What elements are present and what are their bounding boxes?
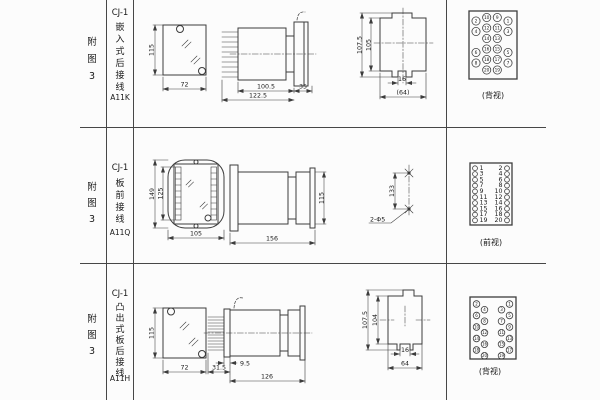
dim-total: 122.5 — [249, 93, 267, 100]
flange-stadium-outline — [168, 160, 224, 228]
view-label: (背视) — [460, 366, 520, 377]
terminal-number: 16 — [482, 342, 488, 347]
terminal-number: 13 — [495, 36, 501, 42]
view-label: (背视) — [464, 90, 522, 101]
terminal-strip-right-cells — [211, 173, 217, 215]
figure-ref-label: 附 图 3 — [82, 34, 102, 85]
row1-side-view-drawing: 100.5 35 122.5 — [216, 6, 321, 106]
code-label: A11Q — [105, 228, 135, 237]
screw-slot-icon — [200, 202, 208, 209]
cutout-outline — [163, 25, 206, 75]
terminal-number: 17 — [507, 347, 513, 352]
dim-total: 156 — [266, 236, 278, 243]
terminal-number: 10 — [484, 15, 490, 21]
terminal-grid — [470, 163, 512, 225]
row2-terminal-view: 1 3 5 7 9 11 13 15 17 19 2 4 6 8 10 12 1… — [467, 161, 515, 229]
row3-rear-view-drawing: 107.5 104 16 64 — [360, 282, 450, 382]
screw-slot-icon — [180, 322, 189, 330]
terminal-number: 2 — [475, 19, 478, 25]
terminal-number: 16 — [484, 47, 490, 53]
terminal-number: 12 — [484, 26, 490, 32]
terminal-number: 19 — [480, 217, 488, 224]
terminal-number: 18 — [474, 347, 480, 352]
terminal-number: 4 — [475, 29, 478, 35]
terminal-number: 15 — [499, 342, 505, 347]
model-label: CJ-1 — [107, 8, 133, 18]
terminal-strip-left-cells — [176, 173, 182, 215]
terminal-circle — [505, 189, 510, 194]
model-label: CJ-1 — [107, 289, 133, 299]
terminal-circle — [505, 218, 510, 223]
dim-outer-h: 149 — [149, 188, 156, 200]
terminal-circle — [505, 177, 510, 182]
terminal-circle — [473, 166, 478, 171]
mounting-hole-icon — [168, 308, 175, 315]
screw-hole-icon — [194, 160, 198, 164]
terminal-number: 7 — [507, 61, 510, 67]
terminal-number: 6 — [475, 313, 478, 318]
connector-lines — [288, 177, 296, 219]
terminal-number: 8 — [483, 319, 486, 324]
dim-outer-h: 107.5 — [357, 36, 364, 54]
rear-section — [296, 172, 310, 224]
dim-height: 115 — [319, 192, 326, 204]
dim-comb: 31.5 — [212, 365, 226, 372]
terminal-number: 19 — [499, 353, 505, 358]
view-label: (前视) — [462, 237, 520, 248]
dim-width: 72 — [180, 365, 188, 372]
terminal-circle — [505, 172, 510, 177]
terminal-number: 9 — [508, 324, 511, 329]
terminal-number: 10 — [474, 324, 480, 329]
screw-slot-icon — [189, 338, 198, 346]
terminal-circle — [505, 166, 510, 171]
screw-slot-icon — [182, 40, 191, 48]
dim-height: 115 — [149, 327, 156, 339]
dim-total-w: 64 — [401, 361, 409, 368]
dim-width: 105 — [190, 231, 202, 238]
grid-vline-2 — [133, 0, 134, 400]
relay-body — [238, 172, 288, 224]
terminal-circle — [473, 172, 478, 177]
terminal-circle — [473, 195, 478, 200]
terminal-number: 5 — [507, 50, 510, 56]
grid-hline-2 — [80, 263, 546, 264]
terminal-number: 19 — [495, 68, 501, 74]
dim-total-w: (64) — [397, 90, 410, 97]
terminal-circle — [473, 189, 478, 194]
terminal-number: 2 — [475, 301, 478, 306]
terminal-circle — [473, 177, 478, 182]
terminal-number: 3 — [500, 307, 503, 312]
mount-type-label: 板 前 接 线 — [112, 178, 128, 226]
terminal-strip-right — [211, 167, 217, 220]
row1-terminal-view: 2 4 6 8 10 12 14 16 18 20 9 11 13 15 17 … — [466, 9, 520, 85]
mounting-hole-icon — [199, 68, 206, 75]
terminal-number: 14 — [474, 336, 480, 341]
drawing-sheet: 附 图 3 CJ-1 嵌 入 式 后 接 线 A11K 115 72 — [0, 0, 600, 400]
mounting-plate — [230, 165, 238, 231]
row2-side-view-drawing: 115 156 — [224, 155, 336, 251]
terminal-circle — [473, 201, 478, 206]
terminal-number: 18 — [484, 57, 490, 63]
terminal-number: 9 — [496, 15, 499, 21]
dim-body: 126 — [261, 374, 273, 381]
terminal-number: 1 — [508, 301, 511, 306]
dim-slot: 16 — [401, 347, 409, 354]
side-view-shapes — [230, 165, 326, 245]
terminal-circle — [473, 218, 478, 223]
rear-view-shapes — [360, 8, 433, 99]
terminal-comb-icon — [222, 32, 238, 77]
dim-inner-h: 105 — [366, 39, 373, 51]
dim-plate: 9.5 — [240, 361, 250, 368]
dim-flange: 35 — [299, 84, 307, 91]
code-label: A11K — [105, 93, 135, 102]
row3-terminal-view: 2 6 10 14 18 4 8 12 16 20 3 7 11 15 19 1… — [467, 295, 519, 363]
terminal-number: 15 — [495, 47, 501, 53]
terminal-circle — [473, 183, 478, 188]
terminal-number: 20 — [482, 353, 488, 358]
hook-dashed-icon — [234, 298, 243, 308]
terminal-number: 12 — [482, 330, 488, 335]
code-label: A11H — [105, 374, 135, 383]
grid-vline-1 — [106, 0, 107, 400]
screw-hole-icon — [194, 224, 198, 228]
terminal-number: 3 — [507, 29, 510, 35]
mount-type-label: 凸 出 式 板 后 接 线 — [112, 303, 128, 380]
mounting-hole-icon — [177, 26, 184, 33]
terminal-circle — [505, 201, 510, 206]
terminal-number: 11 — [499, 330, 505, 335]
row1-rear-view-drawing: 107.5 105 16 (64) — [354, 5, 444, 107]
dim-slot: 16 — [398, 76, 406, 83]
row1-panel-cutout-drawing: 115 72 — [141, 11, 221, 103]
model-label: CJ-1 — [107, 163, 133, 173]
terminal-number: 13 — [507, 336, 513, 341]
cutout-outline — [163, 308, 206, 358]
dim-spacing: 133 — [389, 185, 396, 197]
dim-inner-h: 125 — [158, 187, 165, 199]
terminal-circle — [473, 206, 478, 211]
terminal-comb-icon — [208, 317, 224, 350]
terminal-number: 1 — [507, 19, 510, 25]
terminal-number: 20 — [484, 68, 490, 74]
rear-view-shapes — [366, 290, 430, 370]
figure-ref-label: 附 图 3 — [82, 312, 102, 360]
terminal-number: 11 — [495, 26, 501, 32]
screw-slot-icon — [191, 56, 200, 64]
mount-type-label: 嵌 入 式 后 接 线 — [112, 22, 128, 94]
terminal-circle — [505, 212, 510, 217]
terminal-circle — [473, 212, 478, 217]
dim-inner-h: 104 — [372, 314, 379, 326]
terminal-number: 7 — [500, 319, 503, 324]
terminal-number: 14 — [484, 36, 490, 42]
dim-outer-h: 107.5 — [362, 311, 369, 329]
grid-hline-1 — [80, 127, 546, 128]
terminal-number: 20 — [494, 217, 502, 224]
mounting-hole-icon — [205, 215, 211, 221]
terminal-circle — [505, 206, 510, 211]
dim-width: 72 — [180, 82, 188, 89]
terminal-number: 17 — [495, 57, 501, 63]
terminal-number: 5 — [508, 313, 511, 318]
terminal-circle — [505, 183, 510, 188]
figure-ref-label: 附 图 3 — [82, 180, 102, 228]
dim-body: 100.5 — [257, 84, 275, 91]
end-cap — [310, 168, 315, 228]
hole-spec-label: 2-Φ5 — [370, 217, 385, 224]
terminal-number: 6 — [475, 50, 478, 56]
terminal-number: 4 — [483, 307, 486, 312]
row3-side-view-drawing: 9.5 31.5 126 — [204, 277, 319, 389]
screw-slot-icon — [186, 180, 194, 187]
terminal-circle — [505, 195, 510, 200]
terminal-number: 8 — [475, 61, 478, 67]
terminal-strip-left — [176, 167, 182, 220]
dim-height: 115 — [149, 44, 156, 56]
hook-dashed-icon — [297, 12, 305, 20]
row2-drill-template-drawing: 133 2-Φ5 — [363, 159, 443, 231]
